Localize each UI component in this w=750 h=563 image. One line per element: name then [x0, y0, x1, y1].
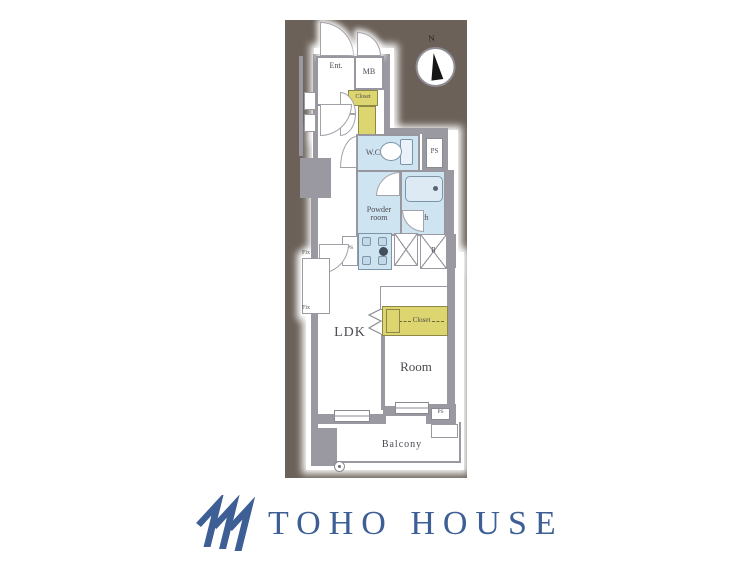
- compass: N: [408, 31, 462, 95]
- burner-icon: [378, 237, 387, 246]
- balcony-label: Balcony: [372, 440, 432, 451]
- toho-house-logo-text: TOHO HOUSE: [268, 505, 564, 543]
- balcony-drain-icon: [334, 461, 345, 472]
- ps-bottom-label: PS: [432, 409, 449, 416]
- wall-left-mid: [311, 198, 318, 258]
- toho-house-logo: TOHO HOUSE: [190, 494, 570, 554]
- ldk-window: [334, 410, 370, 422]
- ldk-label: LDK: [330, 326, 370, 341]
- fix-upper-label: Fix: [296, 250, 316, 256]
- fridge-label: R: [421, 235, 446, 254]
- ps-bottom-box: PS: [431, 408, 450, 420]
- wall-niche-2: [304, 114, 316, 132]
- bathtub-drain-icon: [433, 186, 438, 191]
- fix-lower-label: Fix: [296, 305, 316, 311]
- wall-niche-1: [304, 92, 316, 110]
- meterbox-room: MB: [354, 56, 384, 90]
- sink-icon: [379, 247, 388, 256]
- fridge-space-box: R: [420, 234, 447, 269]
- ps-top-box: PS: [426, 138, 443, 168]
- balcony-rail-right: [459, 422, 461, 463]
- balcony-drain-dot: [338, 465, 341, 468]
- bathtub-icon: [405, 176, 443, 202]
- closet-pole-line: [399, 321, 411, 322]
- wall-mb-right: [384, 54, 390, 132]
- burner-icon: [378, 256, 387, 265]
- burner-icon: [362, 237, 371, 246]
- wall-right-utility: [447, 234, 456, 268]
- kitchen-unit-icon: [358, 233, 392, 270]
- wall-room-left: [381, 334, 385, 410]
- ps-top-label: PS: [427, 139, 442, 155]
- entrance-label: Ent.: [318, 58, 354, 70]
- balcony-notch: [431, 424, 458, 438]
- wc-room: W.C.: [356, 134, 420, 172]
- floorplan-page: N Ent. MB Closet W.C. PS: [0, 0, 750, 563]
- closet-top-label: Closet: [349, 91, 377, 100]
- room-label: Room: [395, 360, 437, 374]
- toilet-bowl-icon: [380, 142, 402, 161]
- wall-pillar: [300, 158, 331, 198]
- toho-house-logo-icon: [190, 495, 260, 553]
- wall-outer-strip: [299, 56, 303, 156]
- closet-lower-cell: [386, 309, 400, 333]
- meterbox-label: MB: [356, 58, 382, 76]
- closet-pole-line: [432, 321, 444, 322]
- wall-right-lower: [447, 268, 455, 418]
- burner-icon: [362, 256, 371, 265]
- room-window: [395, 402, 429, 414]
- washer-space-box: [394, 233, 418, 266]
- powder-room-label: Powder room: [363, 206, 395, 223]
- closet-lower-label: Closet: [411, 317, 433, 324]
- closet-bifold-door-icon: [368, 308, 382, 336]
